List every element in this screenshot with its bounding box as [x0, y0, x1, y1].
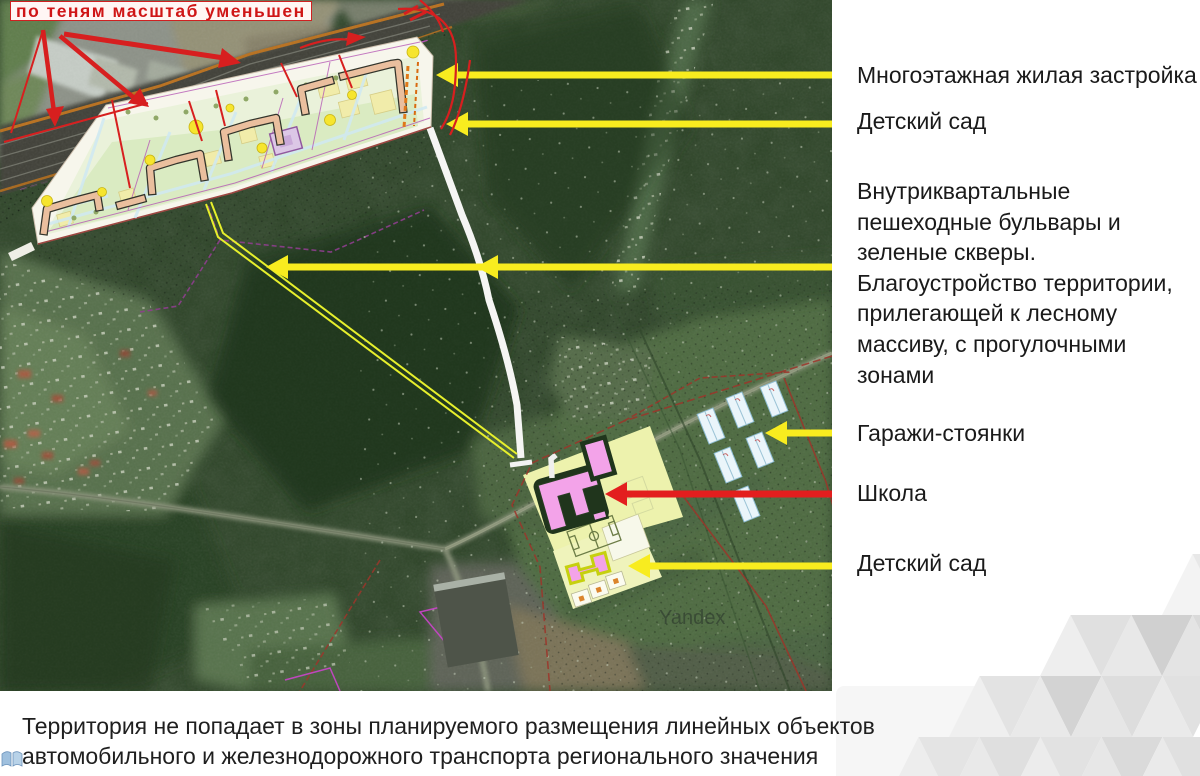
svg-text:Yandex: Yandex — [659, 607, 725, 629]
